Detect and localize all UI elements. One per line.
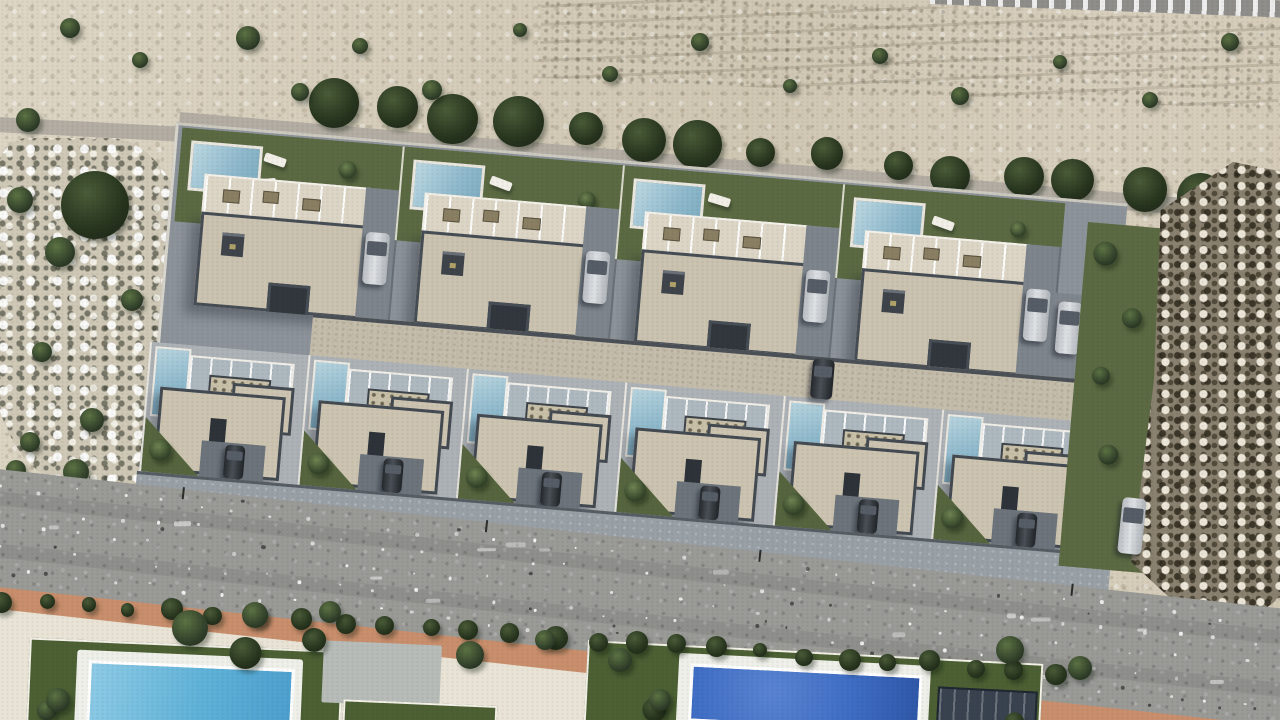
street-hedge-bush — [500, 623, 520, 643]
garden-tree — [1068, 656, 1092, 680]
garden-tree — [242, 602, 268, 628]
street-hedge-bush — [423, 619, 440, 636]
garden-tree — [172, 610, 208, 646]
street-hedge-bush — [0, 592, 12, 613]
street-hedge-bush — [291, 608, 312, 629]
street-hedge-bush — [706, 636, 727, 657]
street-hedge-bush — [458, 620, 478, 640]
car-windshield — [1122, 507, 1143, 524]
street-hedge-bush — [879, 654, 895, 670]
street-hedge-bush — [795, 649, 813, 667]
garden-tree — [649, 689, 671, 711]
street-hedge-bush — [1045, 664, 1067, 686]
garden-tree — [46, 688, 70, 712]
street-hedge-bush — [919, 650, 940, 671]
street-hedge-bush — [589, 633, 608, 652]
garden-tree — [535, 630, 555, 650]
street-hedge-bush — [753, 643, 767, 657]
street-hedge-layer — [0, 0, 1280, 720]
street-hedge-bush — [121, 603, 135, 617]
street-hedge-bush — [839, 649, 861, 671]
garden-tree — [608, 648, 632, 672]
street-hedge-bush — [40, 594, 55, 609]
garden-tree — [456, 641, 484, 669]
aerial-scene — [0, 0, 1280, 720]
street-hedge-bush — [375, 616, 394, 635]
street-hedge-bush — [667, 634, 686, 653]
street-hedge-bush — [626, 631, 648, 653]
street-hedge-bush — [967, 660, 985, 678]
garden-tree — [319, 601, 341, 623]
street-hedge-bush — [82, 597, 96, 611]
garden-tree — [996, 636, 1024, 664]
